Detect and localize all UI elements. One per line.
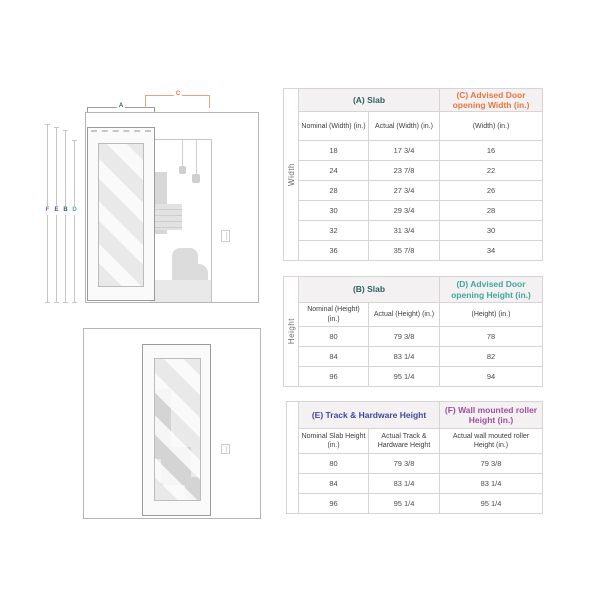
table-cell: 18 [299, 141, 369, 161]
dimension-b-line [63, 130, 68, 303]
height-spec-grid: (B) Slab (D) Advised Door opening Height… [298, 276, 543, 387]
table-cell: 17 3/4 [369, 141, 440, 161]
dimension-d-line [72, 140, 77, 303]
pendant-shade-icon [192, 174, 200, 183]
header-a-slab: (A) Slab [299, 89, 440, 112]
table-cell: 27 3/4 [369, 181, 440, 201]
open-door-diagram: A C F E B D [0, 0, 280, 320]
table-row: 2423 7/822 [299, 161, 543, 181]
table-row: 8483 1/482 [299, 347, 543, 367]
table-cell: 79 3/8 [440, 454, 543, 474]
table-cell: 96 [299, 494, 369, 514]
light-switch-icon [221, 230, 230, 242]
pendant-shade-icon [179, 166, 186, 174]
table-cell: 29 3/4 [369, 201, 440, 221]
door-slab [87, 127, 155, 301]
width-side-label: Width [287, 163, 296, 186]
table-cell: 78 [440, 327, 543, 347]
table-cell: 83 1/4 [440, 474, 543, 494]
table-cell: 22 [440, 161, 543, 181]
header-c-advised-door-opening-width: (C) Advised Door opening Width (in.) [440, 89, 543, 112]
glass-reflection [99, 144, 143, 286]
table-cell: 30 [440, 221, 543, 241]
table-row: 8483 1/483 1/4 [299, 474, 543, 494]
width-table: Width (A) Slab (C) Advised Door opening … [283, 88, 543, 261]
header-d-advised-door-opening-height: (D) Advised Door opening Height (in.) [440, 277, 543, 303]
header-f-wall-mounted-roller-height: (F) Wall mounted roller Height (in.) [440, 402, 543, 429]
table-cell: 79 3/8 [369, 454, 440, 474]
table-cell: 94 [440, 367, 543, 387]
table-row: 2827 3/426 [299, 181, 543, 201]
table-cell: 16 [440, 141, 543, 161]
dimension-a-label: A [117, 103, 125, 110]
light-switch-icon [221, 444, 230, 454]
col-header-actual-wall-mounted-roller-height: Actual wall mouted roller Height (in.) [440, 429, 543, 454]
table-cell: 30 [299, 201, 369, 221]
glass-reflection [155, 359, 200, 500]
height-table-side-cell: Height [283, 276, 299, 387]
table-cell: 24 [299, 161, 369, 181]
table-cell: 31 3/4 [369, 221, 440, 241]
table-row: 9695 1/494 [299, 367, 543, 387]
table-row: 3231 3/430 [299, 221, 543, 241]
table-cell: 36 [299, 241, 369, 261]
col-header-actual-width: Actual (Width) (in.) [369, 112, 440, 141]
height-table: Height (B) Slab (D) Advised Door opening… [283, 276, 543, 387]
door-dimension-spec-sheet: { "colors": { "slab_teal_dark": "#2e6260… [0, 0, 600, 600]
table-cell: 84 [299, 347, 369, 367]
table-row: 3029 3/428 [299, 201, 543, 221]
door-opening [150, 139, 212, 302]
col-header-actual-height: Actual (Height) (in.) [369, 303, 440, 327]
table-row: 8079 3/878 [299, 327, 543, 347]
door-glass-panel [98, 143, 144, 287]
col-header-nominal-slab-height: Nominal Slab Height (in.) [299, 429, 369, 454]
pendant-light-icon [182, 140, 183, 166]
col-header-opening-height: (Height) (in.) [440, 303, 543, 327]
table-cell: 32 [299, 221, 369, 241]
col-header-actual-track-hardware-height: Actual Track & Hardware Height [369, 429, 440, 454]
table-cell: 83 1/4 [369, 347, 440, 367]
dimension-e-line [54, 127, 59, 303]
width-table-side-cell: Width [283, 88, 299, 261]
header-b-slab: (B) Slab [299, 277, 440, 303]
table-cell: 95 1/4 [369, 367, 440, 387]
track-and-rollers [91, 130, 151, 132]
table-cell: 28 [299, 181, 369, 201]
table-row: 3635 7/834 [299, 241, 543, 261]
height-side-label: Height [287, 318, 296, 344]
header-e-track-hardware-height: (E) Track & Hardware Height [299, 402, 440, 429]
table-cell: 84 [299, 474, 369, 494]
table-cell: 26 [440, 181, 543, 201]
table-cell: 80 [299, 454, 369, 474]
table-row: 1817 3/416 [299, 141, 543, 161]
col-header-nominal-width: Nominal (Width) (in.) [299, 112, 369, 141]
height-table-body: 8079 3/8788483 1/4829695 1/494 [299, 327, 543, 387]
table-cell: 95 1/4 [369, 494, 440, 514]
door-glass-panel [154, 358, 201, 501]
width-table-body: 1817 3/4162423 7/8222827 3/4263029 3/428… [299, 141, 543, 261]
dimension-d-label: D [71, 206, 78, 215]
table-cell: 23 7/8 [369, 161, 440, 181]
table-cell: 82 [440, 347, 543, 367]
dimension-f-label: F [44, 206, 51, 215]
table-cell: 79 3/8 [369, 327, 440, 347]
col-header-nominal-height: Nominal (Height) (in.) [299, 303, 369, 327]
table-row: 9695 1/495 1/4 [299, 494, 543, 514]
bed-mattress-shape [152, 204, 182, 230]
col-header-opening-width: (Width) (in.) [440, 112, 543, 141]
table-cell: 28 [440, 201, 543, 221]
width-spec-grid: (A) Slab (C) Advised Door opening Width … [298, 88, 543, 261]
table-cell: 80 [299, 327, 369, 347]
floor-shape [150, 280, 211, 302]
table-cell: 96 [299, 367, 369, 387]
table-row: 8079 3/879 3/8 [299, 454, 543, 474]
pendant-light-icon [196, 140, 197, 174]
track-table-body: 8079 3/879 3/88483 1/483 1/49695 1/495 1… [299, 454, 543, 514]
closed-door-diagram [0, 320, 280, 530]
dimension-e-label: E [53, 206, 60, 215]
track-hardware-table: (E) Track & Hardware Height (F) Wall mou… [286, 401, 543, 514]
table-cell: 83 1/4 [369, 474, 440, 494]
track-spec-grid: (E) Track & Hardware Height (F) Wall mou… [298, 401, 543, 514]
dimension-b-label: B [62, 206, 69, 215]
table-cell: 34 [440, 241, 543, 261]
table-cell: 95 1/4 [440, 494, 543, 514]
table-cell: 35 7/8 [369, 241, 440, 261]
dimension-c-label: C [174, 91, 182, 98]
door-slab [142, 344, 211, 516]
